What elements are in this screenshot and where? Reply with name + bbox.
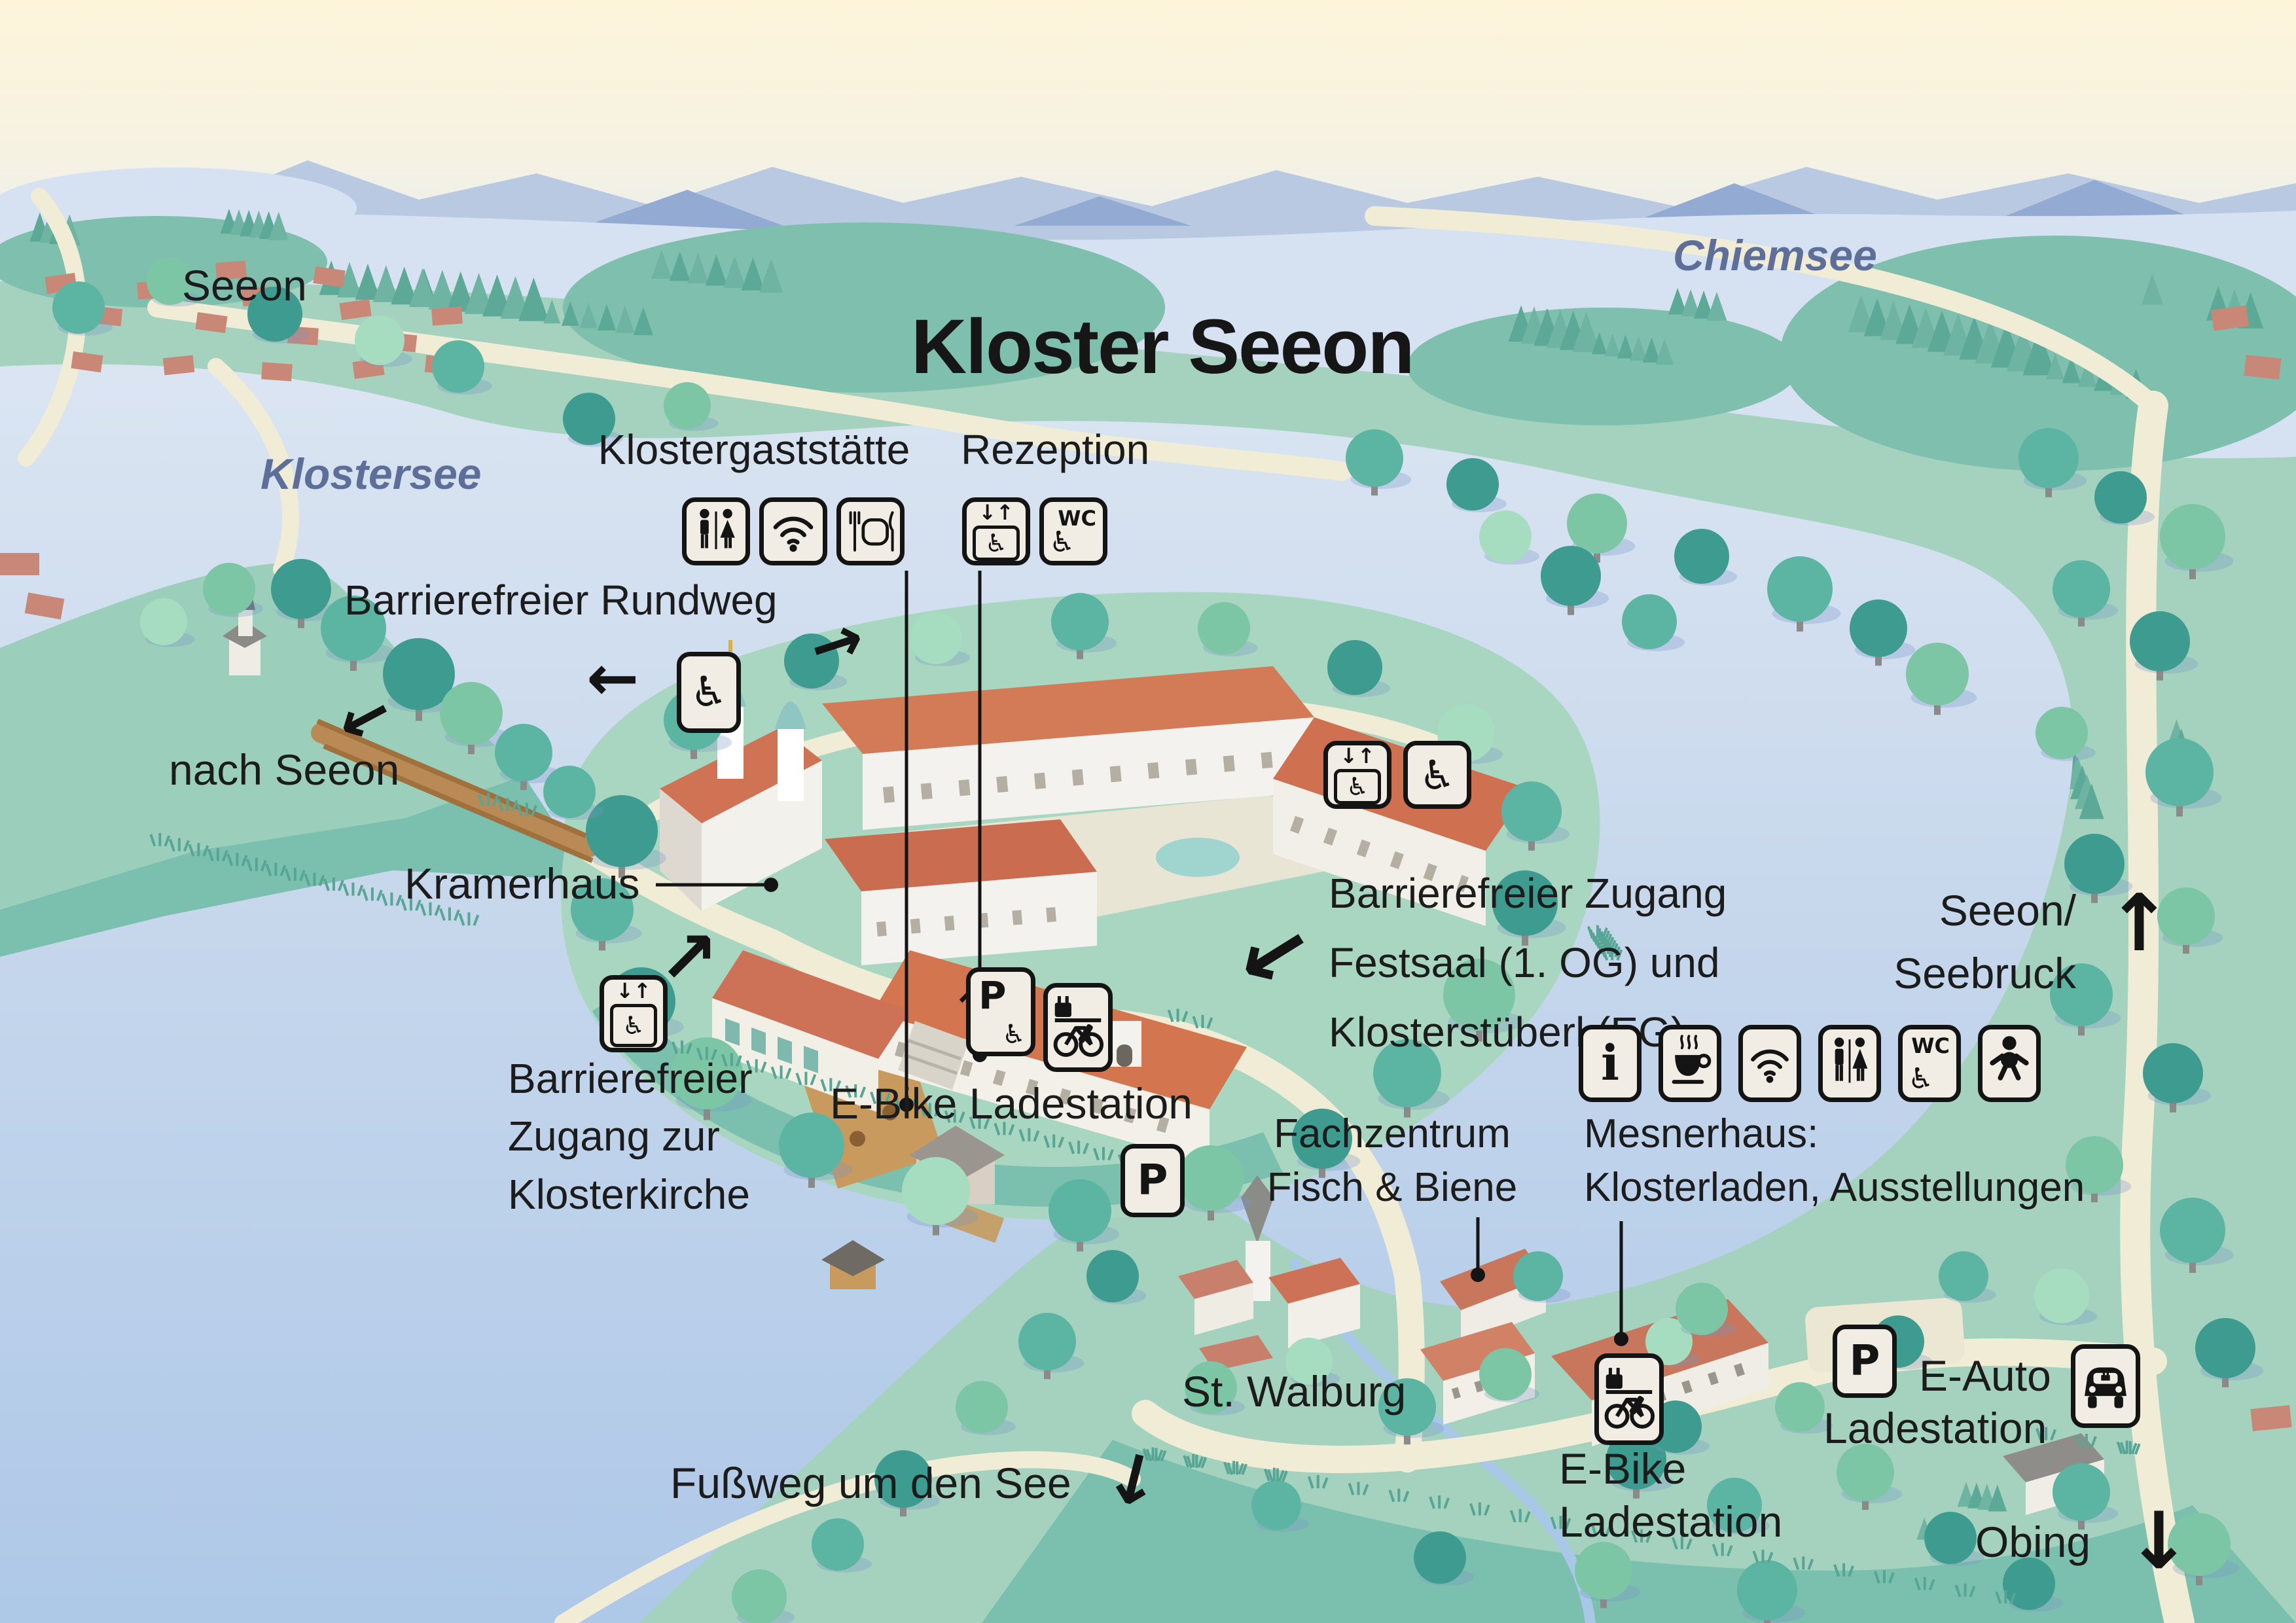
ebike-charging-icon (1043, 983, 1113, 1072)
wheelchair-icon: ♿ (677, 652, 741, 733)
place-label-fussweg: Fußweg um den See (670, 1458, 1071, 1509)
kloster-seeon-map: Kloster Seeon Seeon Chiemsee Klostersee … (0, 0, 2296, 1623)
water-label-chiemsee: Chiemsee (1673, 230, 1877, 280)
poi-label-eauto-2: Ladestation (1823, 1403, 2047, 1454)
poi-label-fachzentrum: Fachzentrum Fisch & Biene (1251, 1107, 1533, 1215)
place-label-st-walburg: St. Walburg (1182, 1366, 1406, 1418)
place-label-nach-seeon: nach Seeon (169, 745, 399, 796)
wheelchair-glyph: ♿ (690, 668, 727, 717)
festsaal-icon-row: ↓↑ ♿ ♿ (1323, 741, 1471, 809)
poi-label-eauto-1: E-Auto (1919, 1351, 2051, 1402)
parking-icon: P (1833, 1325, 1897, 1398)
info-icon: i (1579, 1025, 1641, 1102)
wheelchair-glyph: ♿ (1346, 772, 1369, 801)
klostergaststaette-icon-row (682, 497, 905, 565)
place-label-seeon: Seeon (182, 260, 307, 312)
restaurant-icon (836, 497, 905, 565)
poi-label-ebike-mitte: E-Bike Ladestation (830, 1079, 1193, 1130)
obing-arrow: ↓ (2126, 1503, 2192, 1581)
wifi-icon (759, 497, 827, 565)
water-label-klostersee: Klostersee (260, 449, 482, 499)
wc-accessible-icon: WC ♿ (1898, 1025, 1961, 1102)
wheelchair-glyph: ♿ (1908, 1065, 1933, 1094)
wc-icon (682, 497, 750, 565)
wheelchair-glyph: ♿ (1002, 1022, 1026, 1048)
wheelchair-glyph: ♿ (1419, 751, 1456, 799)
cafe-icon (1659, 1025, 1721, 1102)
elevator-icon: ↓↑ ♿ (1323, 741, 1391, 809)
poi-label-mesnerhaus: Mesnerhaus: Klosterladen, Ausstellungen (1584, 1107, 2085, 1215)
wheelchair-glyph: ♿ (985, 529, 1007, 558)
kramerhaus-arrow: ↗ (658, 921, 719, 993)
place-label-seebruck: Seeon/ Seebruck (1880, 880, 2076, 1005)
place-label-obing: Obing (1975, 1517, 2090, 1568)
elevator-icon: ↓↑ ♿ (962, 497, 1030, 565)
seebruck-arrow: ↑ (2106, 885, 2172, 963)
elevator-icon: ↓↑ ♿ (600, 975, 668, 1052)
ebike-charging-icon (1594, 1353, 1664, 1445)
rundweg-arrow-left: ← (586, 647, 639, 709)
wc-icon (1818, 1025, 1881, 1102)
poi-label-klostergaststaette: Klostergaststätte (571, 425, 937, 475)
place-label-kramerhaus: Kramerhaus (404, 859, 640, 910)
poi-label-klosterkirche: Barrierefreier Zugang zur Klosterkirche (508, 1050, 752, 1223)
wifi-icon (1738, 1025, 1801, 1102)
poi-label-rezeption: Rezeption (961, 425, 1149, 475)
poi-label-rundweg: Barrierefreier Rundweg (344, 576, 778, 626)
wheelchair-glyph: ♿ (622, 1011, 645, 1040)
accessible-parking-icon: P ♿ (966, 967, 1035, 1056)
wc-accessible-icon: WC ♿ (1039, 497, 1107, 565)
wheelchair-icon: ♿ (1403, 741, 1471, 809)
baby-changing-icon (1978, 1025, 2041, 1102)
rezeption-icon-row: ↓↑ ♿ WC ♿ (962, 497, 1107, 565)
wheelchair-glyph: ♿ (1049, 528, 1075, 557)
ecar-charging-icon (2071, 1344, 2140, 1428)
poi-label-ebike-sued: E-Bike Ladestation (1559, 1442, 1782, 1548)
parking-icon: P (1121, 1144, 1185, 1217)
mesnerhaus-icon-row: i WC ♿ (1579, 1025, 2041, 1102)
page-title: Kloster Seeon (911, 302, 1413, 391)
